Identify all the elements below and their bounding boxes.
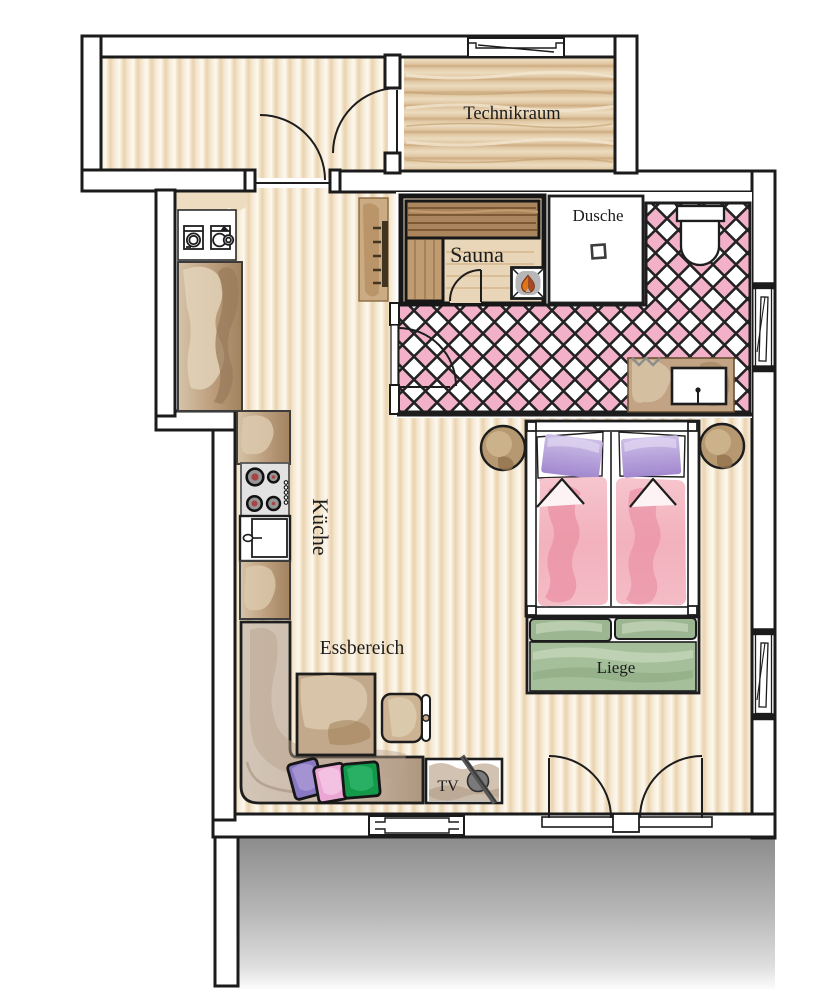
svg-text:TV: TV — [437, 778, 459, 795]
svg-text:Dusche: Dusche — [573, 206, 624, 225]
svg-text:Küche: Küche — [308, 498, 333, 555]
svg-text:Essbereich: Essbereich — [320, 638, 405, 659]
svg-text:Liege: Liege — [597, 658, 636, 677]
svg-text:Technikraum: Technikraum — [463, 104, 561, 124]
svg-text:Sauna: Sauna — [450, 242, 504, 267]
